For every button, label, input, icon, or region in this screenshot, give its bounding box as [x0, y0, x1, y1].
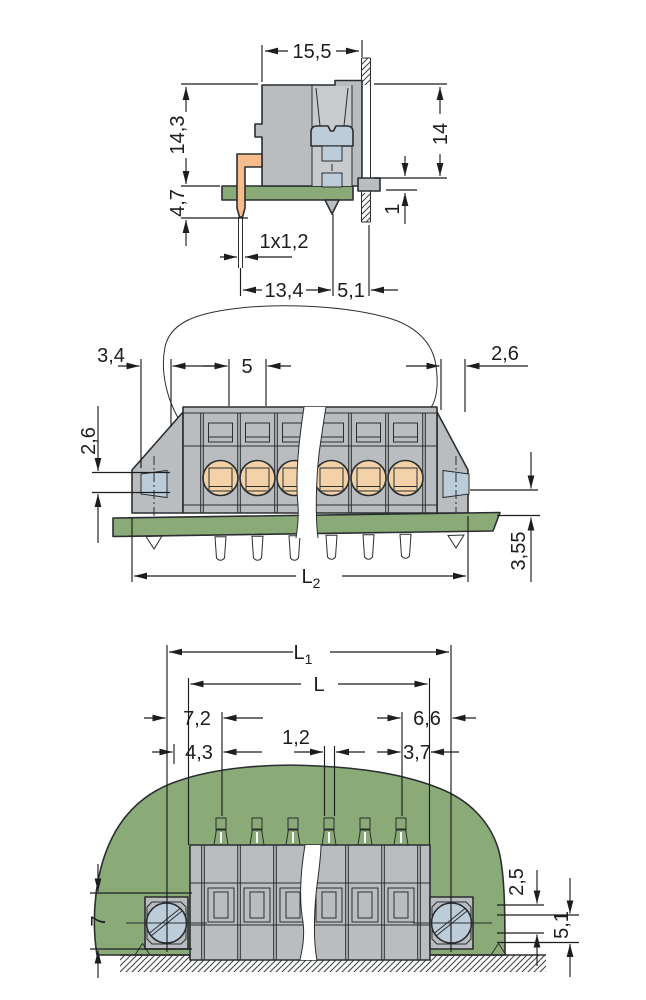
plan-view-geometry: [94, 765, 546, 972]
dim-screw-to-pole: 7,2: [183, 708, 211, 730]
front-view-geometry: [113, 407, 500, 560]
plan-view: L1 L 7,2 4,3 1,2 6,6 3,7: [88, 642, 579, 978]
dim-offset-a: 2,5: [506, 868, 528, 896]
dim-pole-to-edge: 3,7: [403, 742, 431, 764]
side-view: 15,5 14,3 4,7 14 1 1x1,2: [167, 40, 452, 302]
dim-pole-to-screw: 6,6: [413, 708, 441, 730]
dim-panel-clearance: 1: [382, 203, 404, 214]
dim-edge-to-pole: 4,3: [185, 742, 213, 764]
solder-pins-front: [215, 534, 411, 560]
left-flange-front: [132, 412, 183, 513]
front-view: 3,4 5 2,6 2,6 3,55: [78, 306, 540, 591]
dim-panel-offset: 5,1: [337, 280, 365, 302]
dim-panel-height: 14: [430, 123, 452, 145]
terminal-block-drawing: 15,5 14,3 4,7 14 1 1x1,2: [0, 0, 646, 1000]
dim-below-board: 3,55: [508, 532, 530, 571]
right-flange-front: [437, 412, 468, 513]
dim-overall-length-l2: L2: [302, 566, 321, 591]
dim-slot-width: 1,2: [282, 727, 310, 749]
dim-overall-length: L: [313, 674, 324, 696]
dim-pin-section: 1x1,2: [260, 231, 309, 253]
dim-flange-width: 7: [88, 915, 110, 926]
dim-width-top: 15,5: [293, 41, 332, 63]
dim-height-left: 14,3: [167, 116, 189, 155]
dim-right-margin: 2,6: [491, 343, 519, 365]
dim-pole-pitch: 5: [241, 356, 252, 378]
dim-fixing-centers-l1: L1: [294, 642, 313, 667]
dim-pin-below-board: 4,7: [167, 189, 189, 217]
dim-offset-b: 5,1: [551, 911, 573, 939]
dim-left-margin: 3,4: [97, 345, 125, 367]
panel-tab: [358, 178, 380, 191]
technical-drawing-page: 15,5 14,3 4,7 14 1 1x1,2: [0, 0, 646, 1000]
panel-wall: [362, 58, 371, 222]
dim-depth: 13,4: [265, 280, 304, 302]
dim-screw-height: 2,6: [78, 427, 100, 455]
solder-pin-tip: [325, 200, 339, 214]
